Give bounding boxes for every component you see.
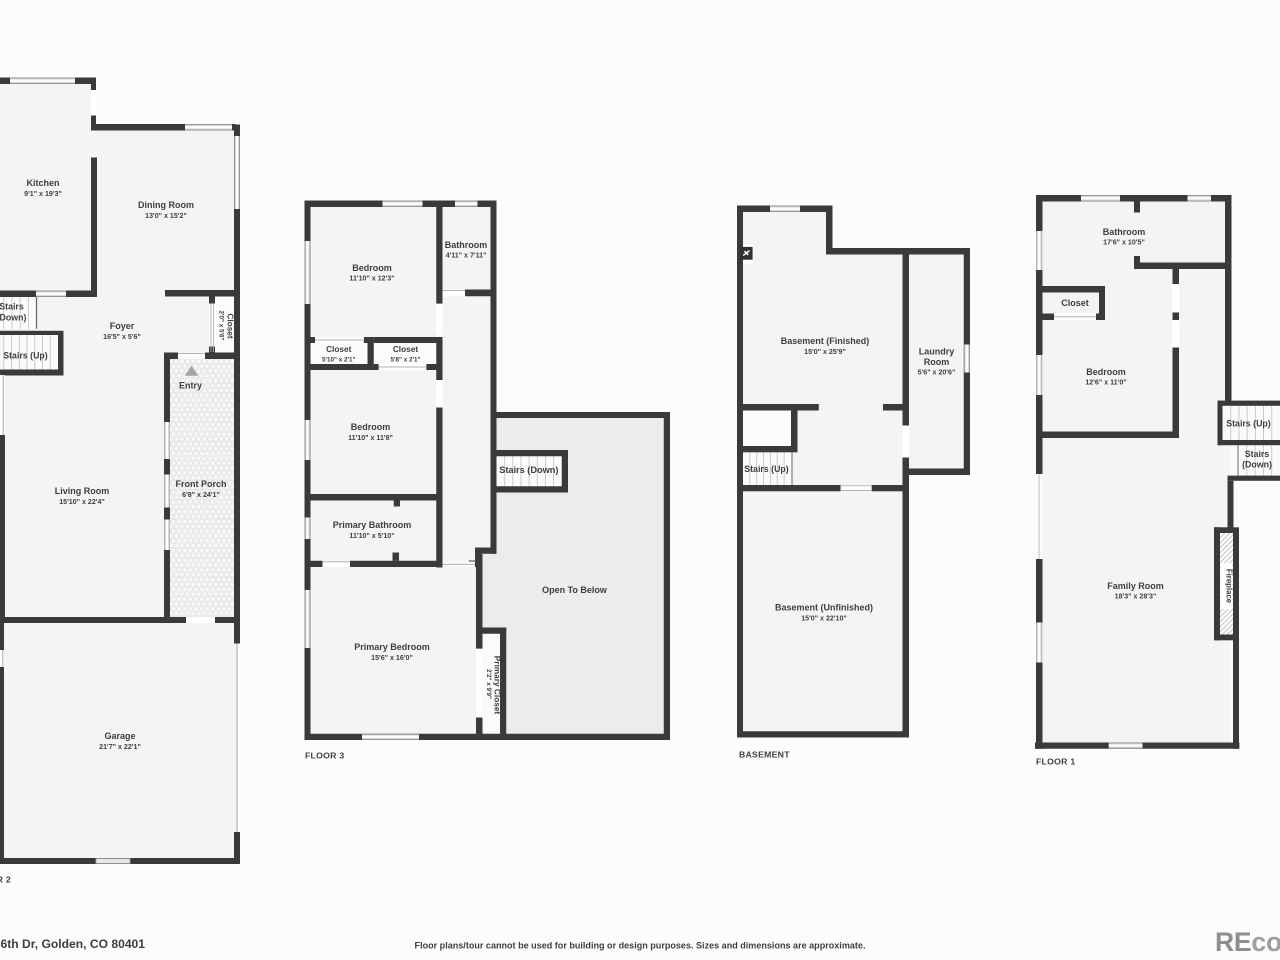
svg-text:Closet: Closet	[326, 344, 352, 354]
svg-text:13'0" x 15'2": 13'0" x 15'2"	[145, 212, 187, 220]
svg-text:(Down): (Down)	[1242, 460, 1272, 470]
svg-text:21'7" x 22'1": 21'7" x 22'1"	[99, 743, 141, 751]
svg-text:16'5" x 5'6": 16'5" x 5'6"	[103, 333, 141, 341]
svg-text:9'1" x 19'3": 9'1" x 19'3"	[24, 190, 62, 198]
svg-text:Closet: Closet	[393, 344, 419, 354]
svg-text:6th Dr, Golden, CO 80401: 6th Dr, Golden, CO 80401	[1, 937, 146, 951]
svg-text:FLOOR 1: FLOOR 1	[1036, 757, 1075, 767]
svg-text:Fireplace: Fireplace	[1225, 569, 1234, 604]
svg-text:11'10" x 11'8": 11'10" x 11'8"	[348, 434, 393, 442]
svg-text:Primary Bathroom: Primary Bathroom	[333, 520, 412, 530]
svg-text:2'2" x 9'9": 2'2" x 9'9"	[485, 669, 492, 699]
svg-text:Dining Room: Dining Room	[138, 200, 194, 210]
svg-text:Garage: Garage	[104, 731, 135, 741]
svg-text:Stairs: Stairs	[0, 302, 24, 312]
svg-text:Bathroom: Bathroom	[1103, 227, 1146, 237]
svg-text:Stairs (Down): Stairs (Down)	[499, 465, 558, 475]
svg-text:5'8" x 2'1": 5'8" x 2'1"	[391, 357, 421, 364]
svg-text:Front Porch: Front Porch	[176, 479, 227, 489]
svg-text:2'0" x 5'6": 2'0" x 5'6"	[218, 311, 225, 341]
svg-text:18'3" x 28'3": 18'3" x 28'3"	[1115, 593, 1157, 601]
svg-text:FLOOR 3: FLOOR 3	[305, 751, 344, 761]
svg-text:5'6" x 20'6": 5'6" x 20'6"	[918, 368, 956, 376]
svg-text:Bedroom: Bedroom	[352, 263, 392, 273]
svg-text:11'10" x 5'10": 11'10" x 5'10"	[349, 532, 394, 540]
svg-text:Kitchen: Kitchen	[26, 178, 59, 188]
svg-text:6'8" x 24'1": 6'8" x 24'1"	[182, 491, 220, 499]
svg-text:Family Room: Family Room	[1107, 581, 1164, 591]
svg-text:Stairs (Up): Stairs (Up)	[3, 351, 48, 361]
svg-text:Foyer: Foyer	[110, 321, 135, 331]
svg-text:Primary Bedroom: Primary Bedroom	[354, 642, 430, 652]
svg-text:Open To Below: Open To Below	[542, 585, 608, 595]
svg-text:17'6" x 10'5": 17'6" x 10'5"	[1103, 239, 1145, 247]
svg-text:Entry: Entry	[179, 381, 202, 391]
svg-text:Stairs: Stairs	[1245, 449, 1270, 459]
svg-text:Stairs (Up): Stairs (Up)	[1226, 419, 1271, 429]
svg-text:15'6" x 16'0": 15'6" x 16'0"	[371, 654, 413, 662]
svg-text:12'6" x 11'0": 12'6" x 11'0"	[1085, 379, 1126, 387]
svg-text:(Down): (Down)	[0, 313, 26, 323]
svg-text:4'11" x 7'11": 4'11" x 7'11"	[446, 252, 487, 260]
svg-text:5'10" x 2'1": 5'10" x 2'1"	[322, 357, 355, 364]
svg-text:REco: REco	[1215, 927, 1280, 957]
svg-text:15'0" x 22'10": 15'0" x 22'10"	[801, 614, 847, 622]
svg-text:Basement (Finished): Basement (Finished)	[781, 336, 870, 346]
svg-text:Bedroom: Bedroom	[351, 422, 391, 432]
svg-text:Living Room: Living Room	[55, 486, 110, 496]
svg-text:11'10" x 12'3": 11'10" x 12'3"	[349, 275, 394, 283]
svg-text:Stairs (Up): Stairs (Up)	[744, 464, 789, 474]
svg-text:BASEMENT: BASEMENT	[739, 750, 790, 760]
svg-text:Closet: Closet	[1061, 298, 1089, 308]
svg-text:15'0" x 25'9": 15'0" x 25'9"	[804, 348, 846, 356]
svg-text:Bathroom: Bathroom	[445, 240, 488, 250]
svg-text:Laundry: Laundry	[919, 347, 955, 357]
svg-text:Bedroom: Bedroom	[1086, 367, 1126, 377]
svg-text:Floor plans/tour cannot be use: Floor plans/tour cannot be used for buil…	[415, 941, 866, 951]
svg-text:15'10" x 22'4": 15'10" x 22'4"	[59, 498, 105, 506]
svg-text:Room: Room	[924, 357, 950, 367]
svg-text:Basement (Unfinished): Basement (Unfinished)	[775, 603, 873, 613]
svg-text:FLOOR 2: FLOOR 2	[0, 875, 11, 885]
